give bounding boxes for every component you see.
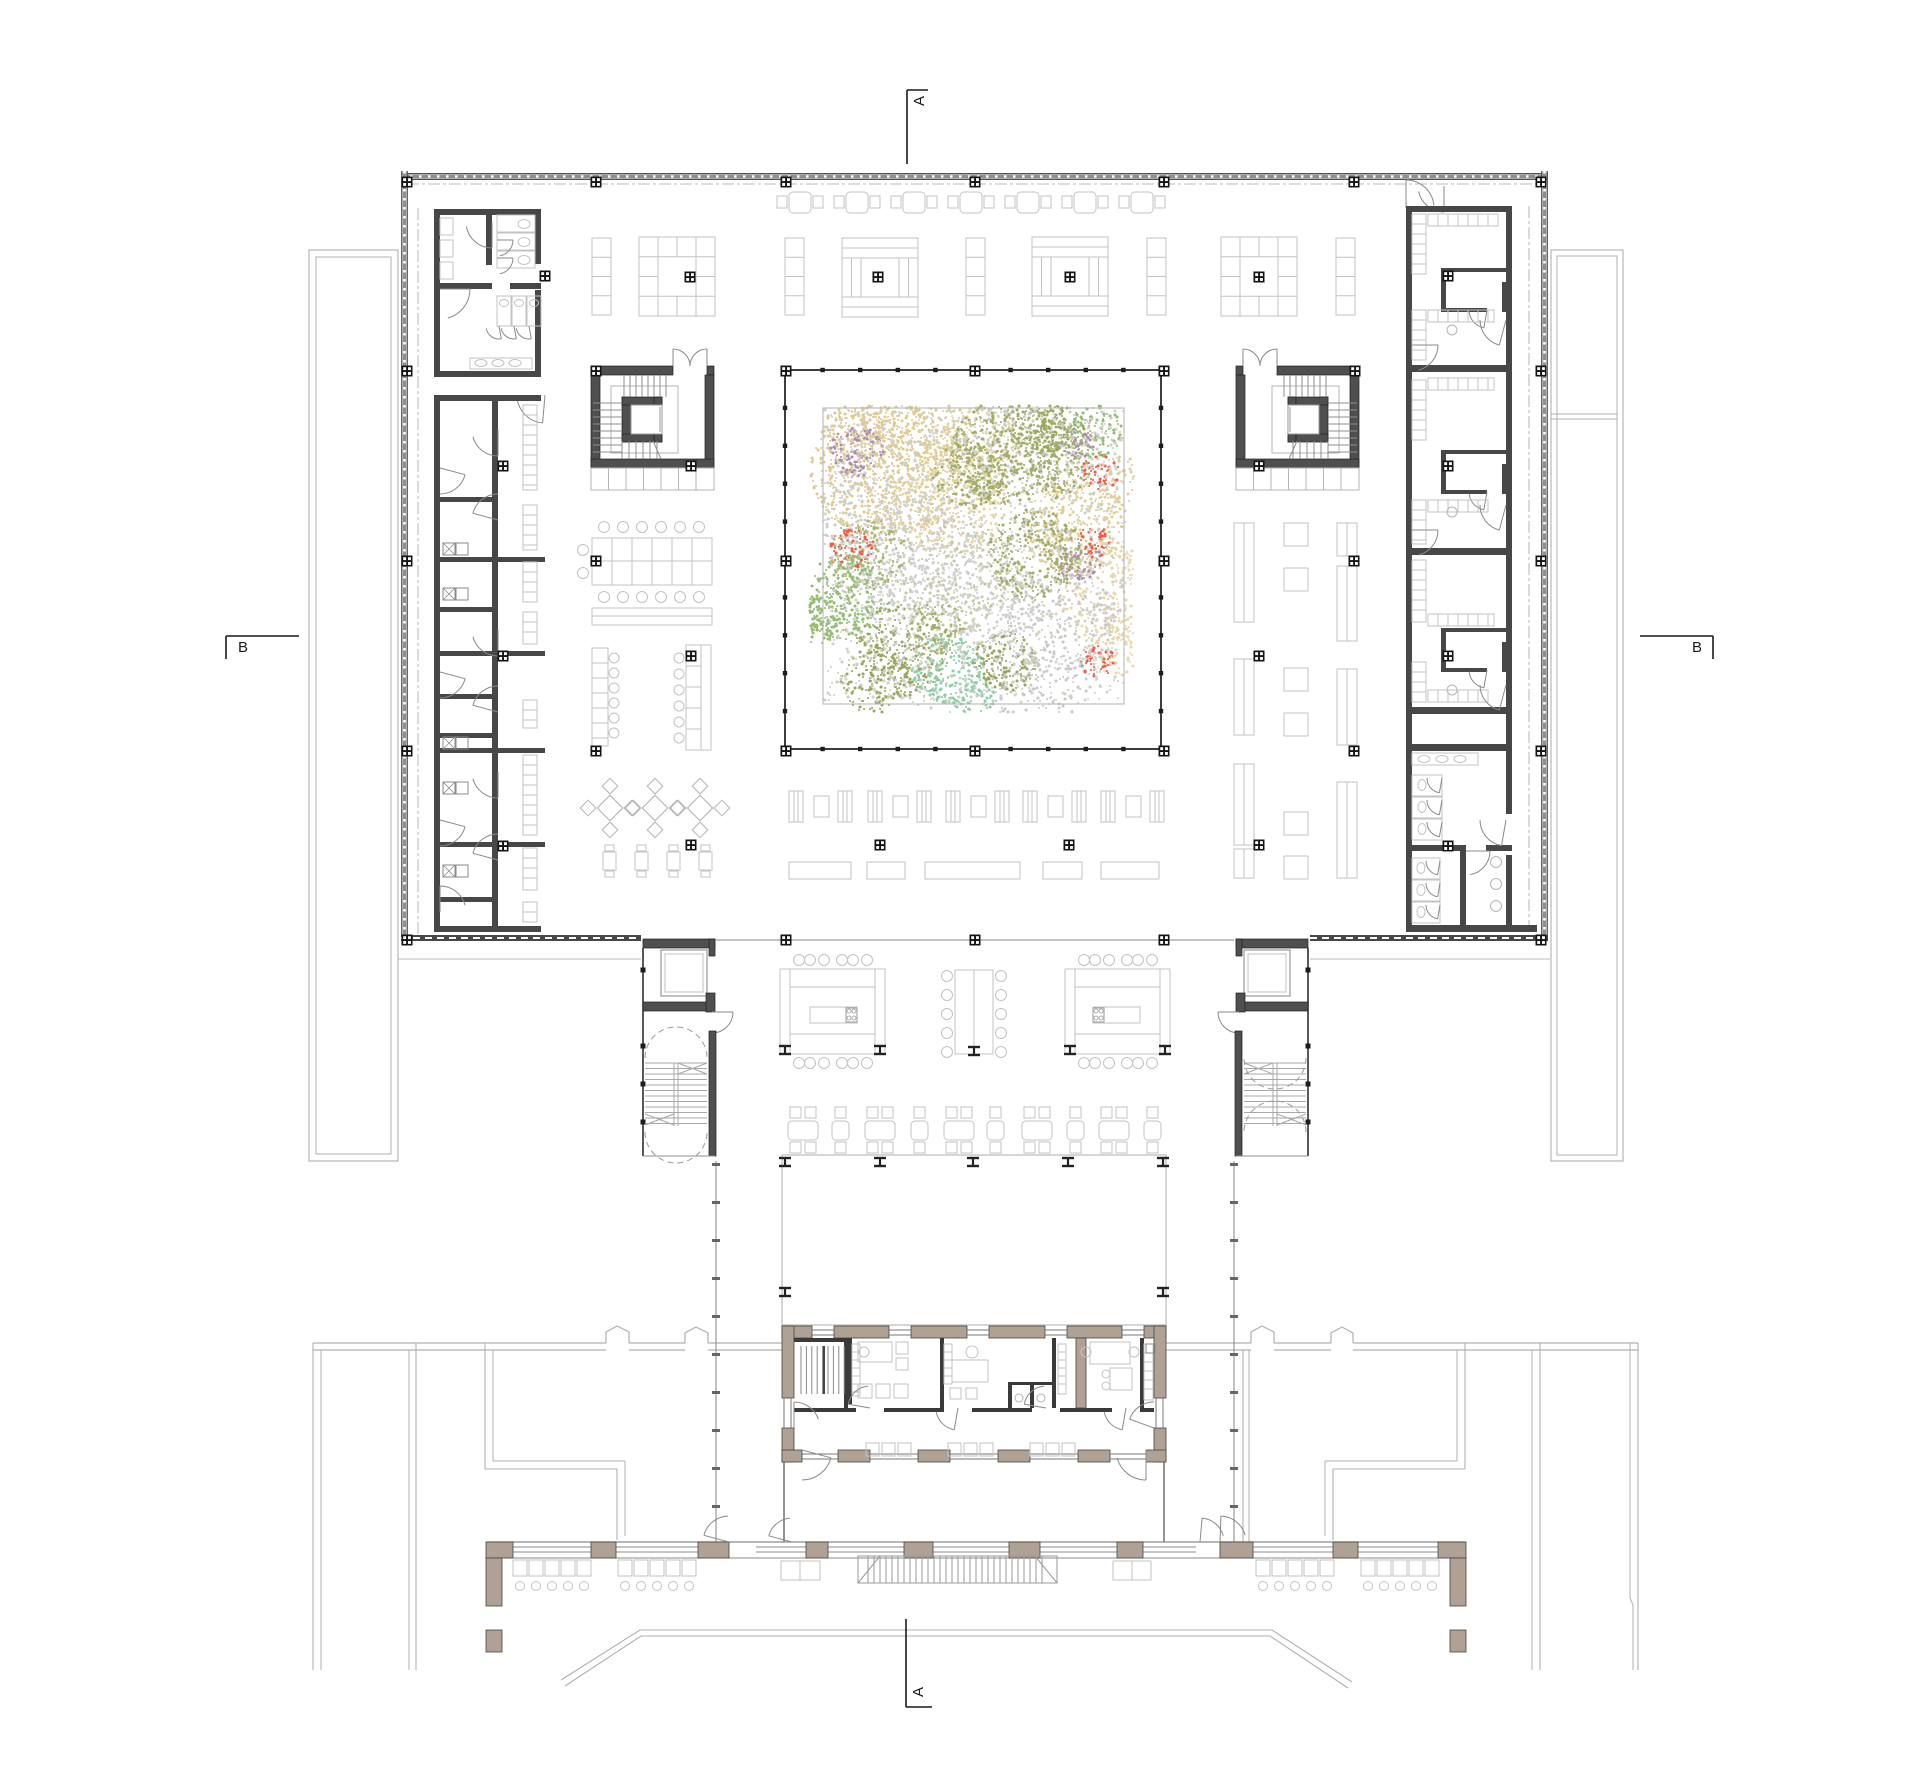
- svg-text:B: B: [238, 639, 248, 656]
- svg-text:B: B: [1692, 639, 1702, 656]
- svg-text:A: A: [911, 96, 928, 106]
- svg-text:A: A: [910, 1687, 927, 1697]
